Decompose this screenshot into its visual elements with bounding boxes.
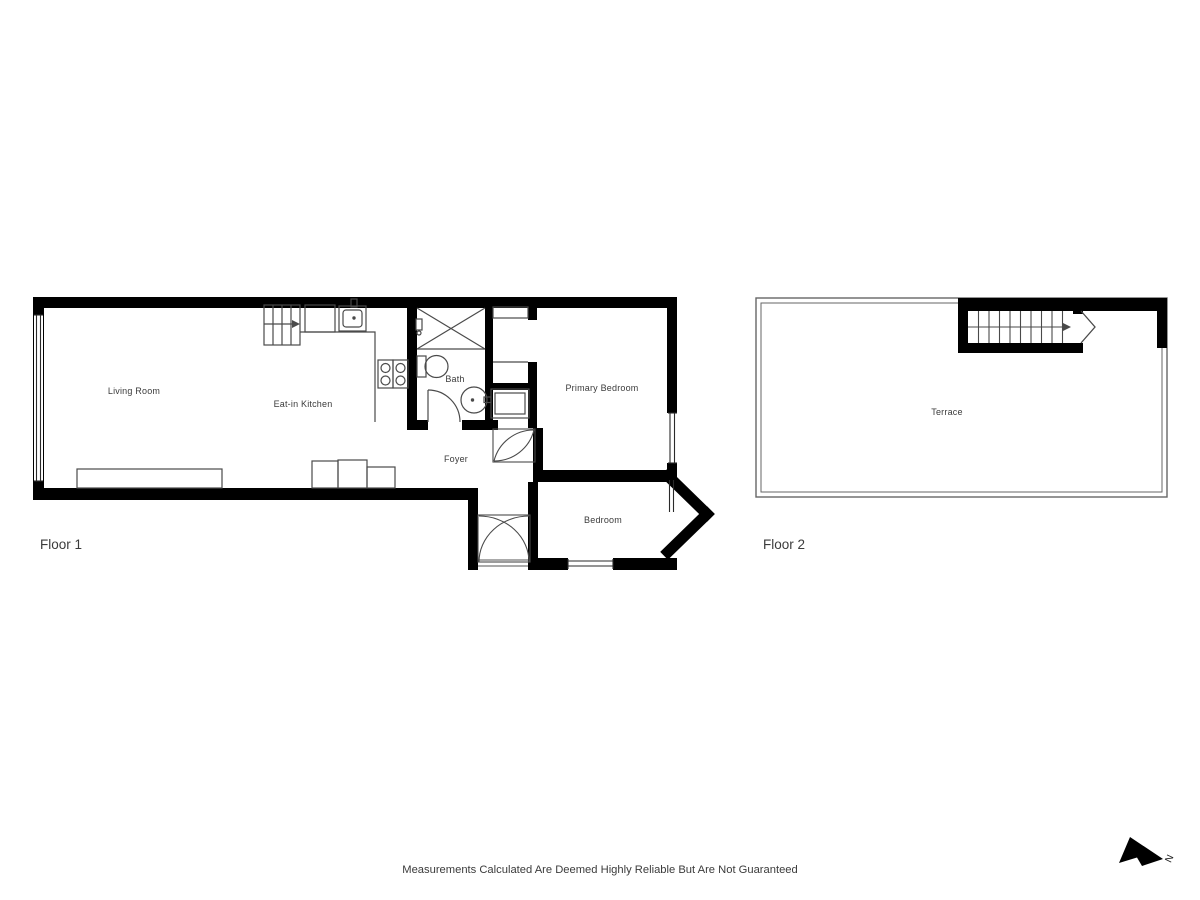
north-label: N <box>1162 852 1175 863</box>
entry-door-threshold <box>478 560 528 566</box>
floor2-stairs-icon <box>968 311 1095 343</box>
floor2-plan: Terrace Floor 2 <box>756 298 1167 552</box>
closet-shelves <box>493 307 528 362</box>
shower-icon <box>416 308 485 349</box>
laundry-box-icon <box>491 389 529 418</box>
terrace-label: Terrace <box>931 407 962 417</box>
north-arrow-icon: N <box>1119 837 1175 866</box>
toilet-icon <box>417 356 448 378</box>
primary-bedroom-door <box>493 429 535 462</box>
living-room-label: Living Room <box>108 386 160 396</box>
kitchen-cabinet-icon <box>305 305 335 332</box>
disclaimer-text: Measurements Calculated Are Deemed Highl… <box>402 864 798 876</box>
bedroom-window <box>568 558 613 570</box>
entry-door <box>478 515 530 562</box>
living-room-window <box>34 315 43 481</box>
foyer-label: Foyer <box>444 454 468 464</box>
floor-plan-page: Living Room Eat-in Kitchen Bath Foyer Pr… <box>0 0 1200 900</box>
dining-seating-icons <box>312 460 395 488</box>
stairs-icon <box>264 305 300 345</box>
floor1-walls <box>33 297 677 570</box>
floor-plan-canvas: Living Room Eat-in Kitchen Bath Foyer Pr… <box>0 0 1200 900</box>
floor2-label: Floor 2 <box>763 537 805 552</box>
sofa-icon <box>77 469 222 488</box>
bath-label: Bath <box>445 374 464 384</box>
floor1-label: Floor 1 <box>40 537 82 552</box>
primary-bedroom-window <box>668 413 677 463</box>
primary-bedroom-label: Primary Bedroom <box>565 383 638 393</box>
bath-door <box>428 390 460 422</box>
stove-icon <box>378 360 408 388</box>
floor1-plan: Living Room Eat-in Kitchen Bath Foyer Pr… <box>33 297 707 570</box>
kitchen-label: Eat-in Kitchen <box>274 399 333 409</box>
bedroom-label: Bedroom <box>584 515 622 525</box>
